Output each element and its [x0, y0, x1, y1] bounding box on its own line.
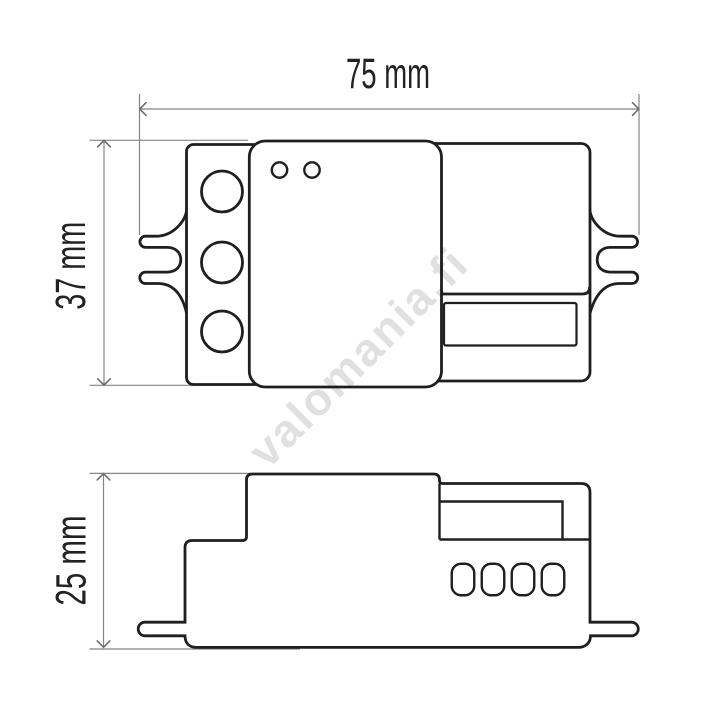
svg-text:75 mm: 75 mm — [346, 50, 430, 98]
svg-text:37 mm: 37 mm — [47, 222, 95, 310]
svg-text:25 mm: 25 mm — [47, 516, 95, 606]
